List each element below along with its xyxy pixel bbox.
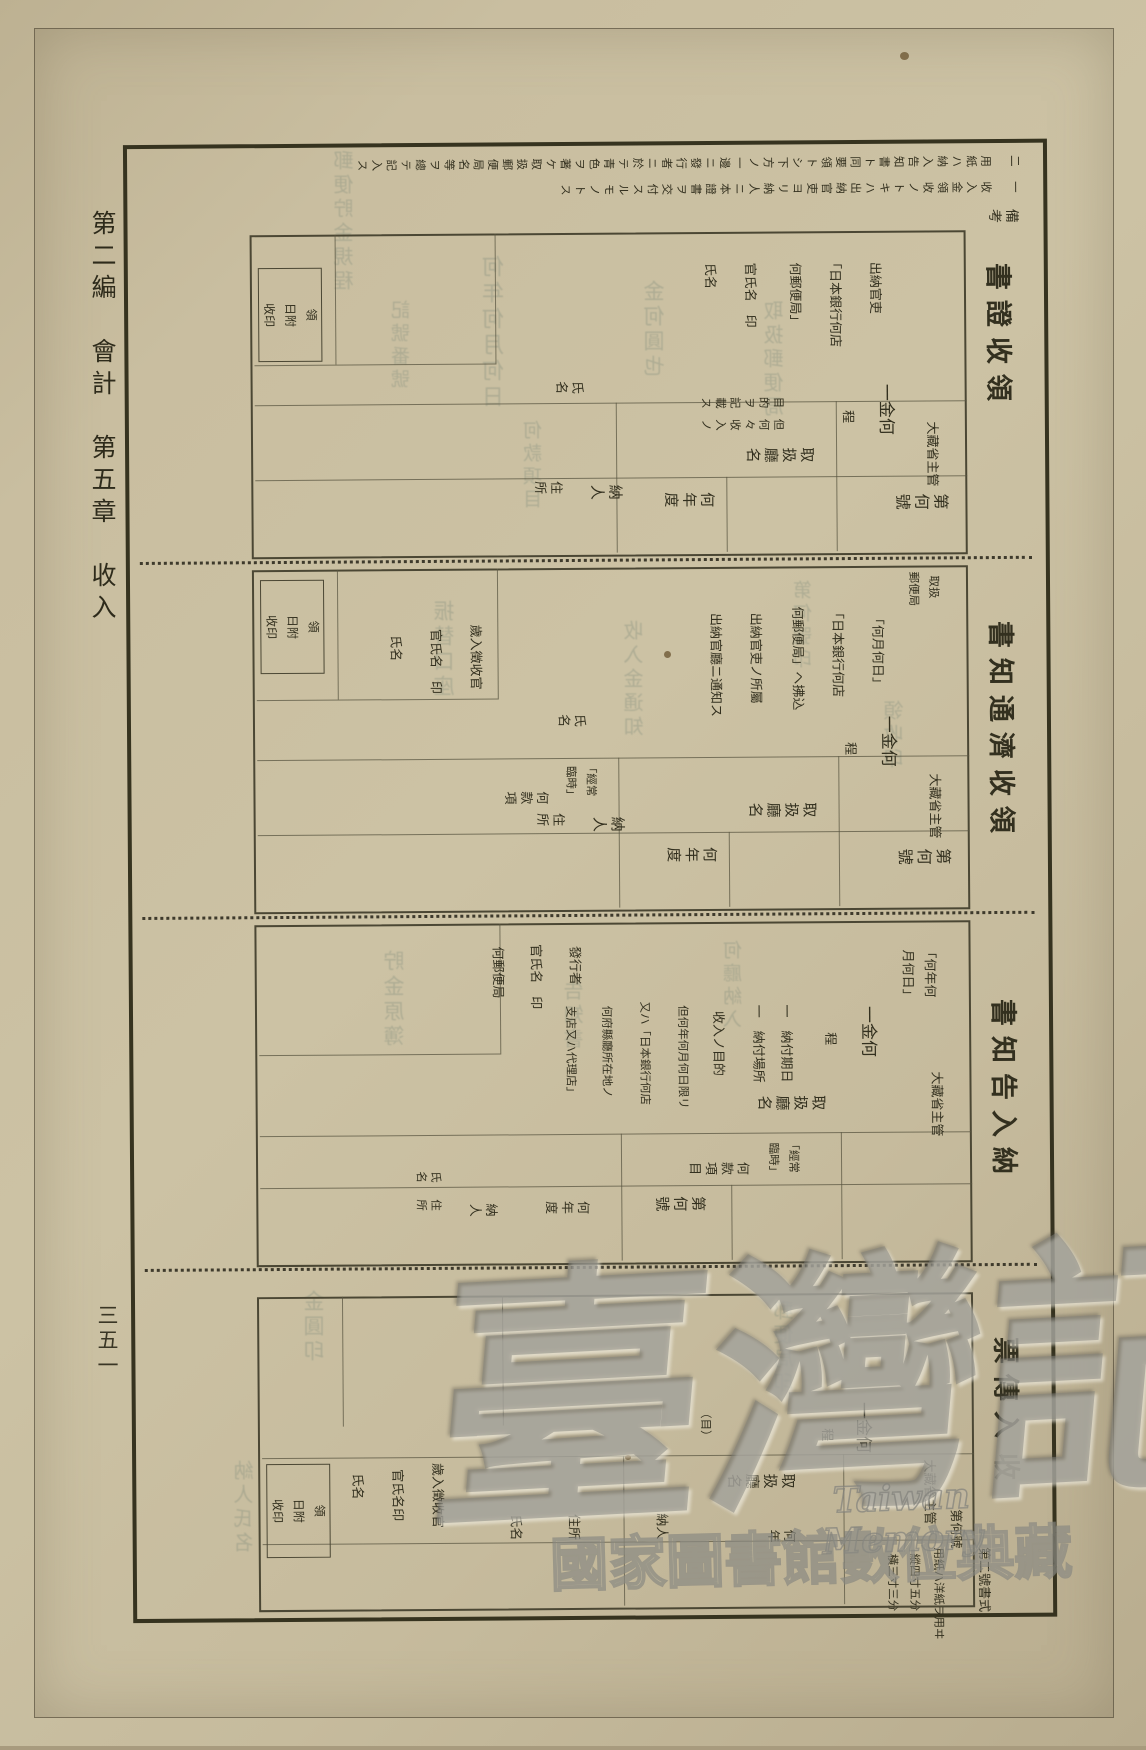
field-serial: 第何號 [947, 1509, 966, 1548]
collector-line: 氏名 [349, 1473, 368, 1499]
receipt-date-stamp-box: 領 日附 收印 [266, 1464, 331, 1558]
printed-content: 備考 一 收入金領收ノトキハ出納官吏ヨリ納人ニ本證書ヲ交付スルモノトス 二 用紙… [0, 0, 1146, 1750]
field-amount: 一金何 [853, 1402, 878, 1453]
field-office: 取扱廳名 [666, 1470, 796, 1492]
field-amount-unit: 程 [819, 1428, 838, 1441]
field-name: 氏名 [507, 1514, 526, 1540]
paper-stain [625, 1455, 631, 1460]
rotated-form-canvas: 備考 一 收入金領收ノトキハ出納官吏ヨリ納人ニ本證書ヲ交付スルモノトス 二 用紙… [131, 143, 1045, 1611]
field-category: （目） [698, 1407, 714, 1442]
field-address: 住所 [565, 1514, 584, 1540]
stamp-box-text: 日附 [292, 1499, 304, 1523]
scanned-document-page: { "margin": { "chapter_header": "第二編 會計 … [0, 0, 1146, 1746]
field-payer: 納人 [653, 1513, 672, 1539]
form-title-faint-char: 收 [989, 1453, 1028, 1490]
field-year: 何年 [717, 1524, 797, 1544]
form-number-label: 第二號書式 [976, 1547, 995, 1612]
field-ministry: 大藏省主管 [921, 1459, 940, 1524]
collector-line: 官氏名印 [389, 1469, 408, 1521]
paper-stain [900, 52, 909, 60]
form-section-revenue-voucher: 票傳入 收 第二號書式 用紙ハ洋紙ヲ用ヰ 縱四寸五分 橫三寸三分 第何號 大藏省… [131, 143, 1045, 1611]
collector-line: 歲入徵收官 [429, 1463, 448, 1528]
paper-stain [664, 651, 671, 658]
stamp-box-text: 領 [313, 1505, 325, 1517]
form-title: 票傳入 [988, 1337, 1028, 1448]
stamp-box-text: 收印 [272, 1499, 284, 1523]
